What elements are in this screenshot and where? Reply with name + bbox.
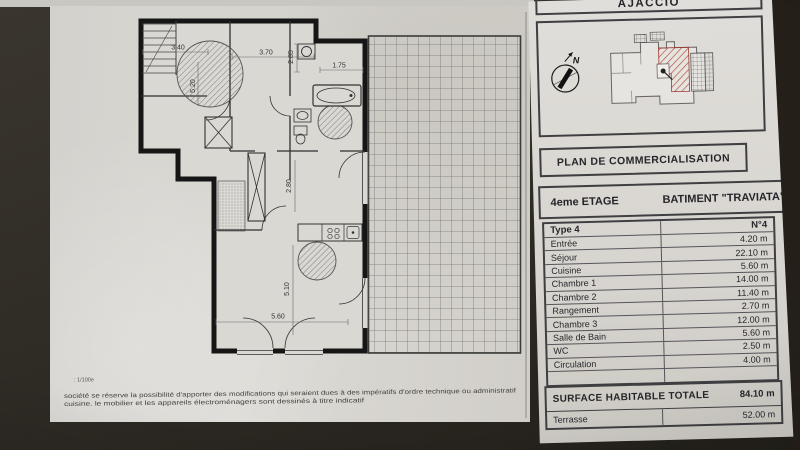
floor-building-box: 4eme ETAGE BATIMENT "TRAVIATA" [538, 179, 800, 219]
north-label: N [573, 55, 580, 65]
room-area: 22.10 m [662, 247, 774, 260]
plan-title-box: PLAN DE COMMERCIALISATION [539, 143, 748, 177]
room-area: 11.40 m [663, 287, 775, 300]
building-footprint [610, 31, 714, 106]
room-table-rows: Entrée 4.20 m Séjour 22.10 m Cuisine 5.6… [544, 232, 776, 372]
unit-label: N°4 [661, 219, 773, 233]
room-area: 5.60 m [662, 260, 774, 273]
highlighted-terrace [691, 53, 714, 92]
site-plan-box: N [536, 15, 766, 137]
north-compass-icon: N [551, 52, 581, 92]
room-area: 4.00 m [665, 354, 777, 367]
total-surface-label: SURFACE HABITABLE TOTALE [547, 389, 740, 405]
city-box: AJACCIO [535, 0, 763, 15]
room-area: 14.00 m [663, 273, 775, 286]
photo-of-floor-plan-document: 3.40 3.70 2.85 1.75 5.20 2.80 5.10 5.60 … [0, 0, 800, 450]
totals-box: SURFACE HABITABLE TOTALE 84.10 m Terrass… [544, 380, 783, 430]
room-area: 12.00 m [664, 314, 776, 327]
site-plan-drawing: N [538, 17, 764, 135]
room-area: 5.60 m [664, 327, 776, 340]
terrace-value: 52.00 m [663, 409, 781, 422]
plan-title: PLAN DE COMMERCIALISATION [557, 152, 730, 169]
floor-label: 4eme ETAGE [540, 194, 662, 209]
total-surface-value: 84.10 m [740, 388, 781, 400]
room-area-table: Type 4 N°4 Entrée 4.20 m Séjour 22.10 m … [542, 216, 779, 387]
city-label: AJACCIO [618, 0, 681, 11]
room-area: 2.70 m [663, 300, 775, 313]
building-label: BATIMENT "TRAVIATA" [662, 190, 785, 205]
commercialisation-panel: AJACCIO N [528, 0, 799, 443]
terrace-label: Terrasse [547, 409, 663, 428]
room-area: 4.20 m [661, 233, 773, 246]
floor-plan-sheet [50, 6, 530, 422]
room-area: 2.50 m [664, 340, 776, 353]
